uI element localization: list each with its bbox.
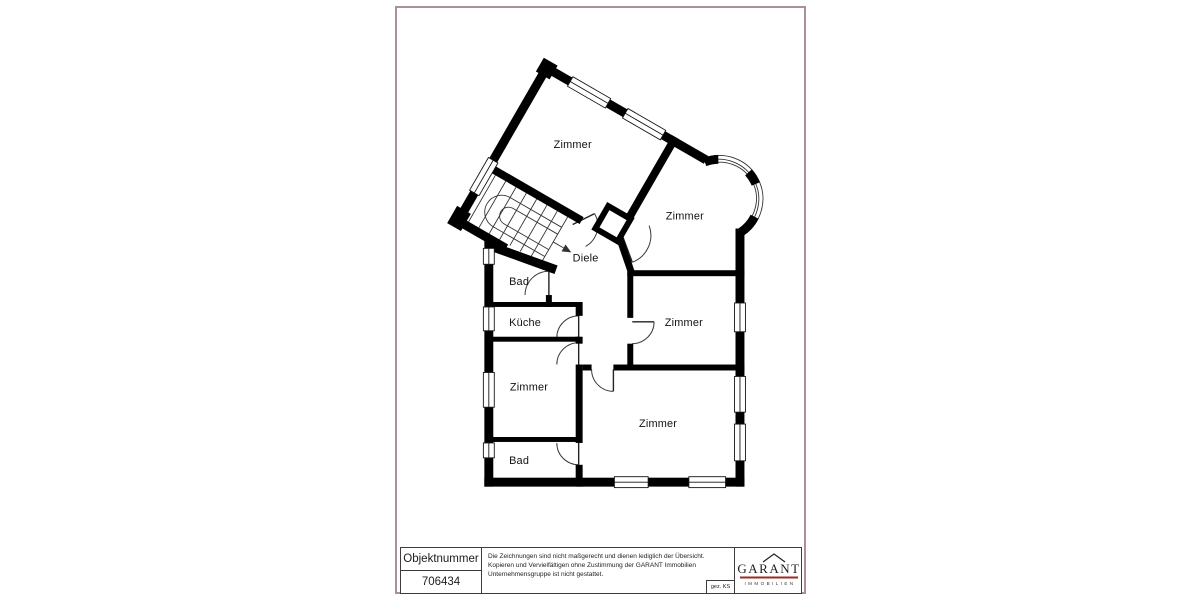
object-number-column: Objektnummer 706434: [401, 548, 482, 593]
object-number-value: 706434: [401, 571, 481, 592]
garant-logo: GARANT IMMOBILIEN: [734, 548, 802, 593]
window-left-3: [483, 372, 494, 407]
wall-wing-bottom: [452, 215, 508, 253]
wall-zimmer-middle-top: [627, 270, 744, 276]
wall-bad-kueche: [488, 302, 579, 307]
door-zimmer-middle: [632, 322, 654, 344]
drawn-by-box: gez. KS: [706, 580, 734, 593]
window-left-1: [483, 248, 494, 264]
stair-arrow-head: [562, 244, 574, 255]
wall-zimmer-bad: [488, 437, 579, 442]
wall-corridor-west: [576, 465, 583, 487]
wall-kueche-zimmer: [488, 337, 579, 342]
window-right-2: [735, 376, 746, 412]
wall-zimmer-bottom-top: [613, 365, 744, 371]
room-label-zimmer-wing-right: Zimmer: [666, 211, 704, 223]
window-wing-top-2: [622, 109, 665, 140]
screenshot-canvas: Zimmer Zimmer Diele Bad Küche Zimmer Zim…: [0, 0, 1200, 600]
room-label-kueche: Küche: [509, 317, 541, 329]
wall-corridor-east: [627, 272, 633, 318]
window-right-3: [735, 424, 746, 461]
window-left-4: [483, 443, 494, 458]
chimney: [595, 206, 630, 241]
room-label-zimmer-wing-left: Zimmer: [554, 139, 592, 151]
stair-arrow-line: [553, 242, 563, 248]
window-bottom-2: [689, 477, 726, 488]
door-bad-lower: [557, 443, 579, 465]
room-label-bad-upper: Bad: [509, 276, 529, 288]
floor-plan: Zimmer Zimmer Diele Bad Küche Zimmer Zim…: [397, 8, 804, 592]
walls-orthogonal: [484, 229, 744, 487]
door-kueche: [557, 316, 579, 338]
wall-corridor-west: [576, 337, 583, 344]
door-zimmer-bottom: [592, 369, 614, 391]
logo-red-rule: [740, 576, 798, 578]
room-label-bad-lower: Bad: [509, 455, 529, 467]
wall-corridor-west: [576, 302, 583, 316]
window-left-2: [483, 307, 494, 331]
room-label-diele: Diele: [573, 252, 599, 264]
room-label-zimmer-left: Zimmer: [510, 381, 548, 393]
room-label-zimmer-middle: Zimmer: [665, 317, 703, 329]
logo-brand-text: GARANT: [737, 561, 800, 576]
disclaimer-text: Die Zeichnungen sind nicht maßgerecht un…: [482, 548, 734, 593]
room-label-zimmer-bottom: Zimmer: [639, 418, 677, 430]
wall-zimmer-bottom-top: [583, 365, 592, 371]
window-wing-left: [470, 158, 498, 196]
wall-wing-left: [453, 62, 553, 226]
window-right-1: [735, 303, 746, 332]
wall-corridor-west: [576, 365, 583, 443]
wall-stair-zimmer: [483, 161, 583, 223]
object-number-label: Objektnummer: [401, 548, 481, 571]
bay-wall-segments: [705, 159, 759, 232]
door-zimmer-left: [557, 343, 579, 365]
garant-logo-art: GARANT IMMOBILIEN: [737, 550, 801, 592]
window-wing-top-1: [567, 77, 610, 108]
window-bottom-1: [614, 477, 648, 488]
logo-tagline-text: IMMOBILIEN: [744, 581, 795, 586]
drawing-sheet: Zimmer Zimmer Diele Bad Küche Zimmer Zim…: [395, 6, 806, 594]
title-block: Objektnummer 706434 Die Zeichnungen sind…: [400, 547, 802, 594]
bay-window: [703, 156, 763, 236]
